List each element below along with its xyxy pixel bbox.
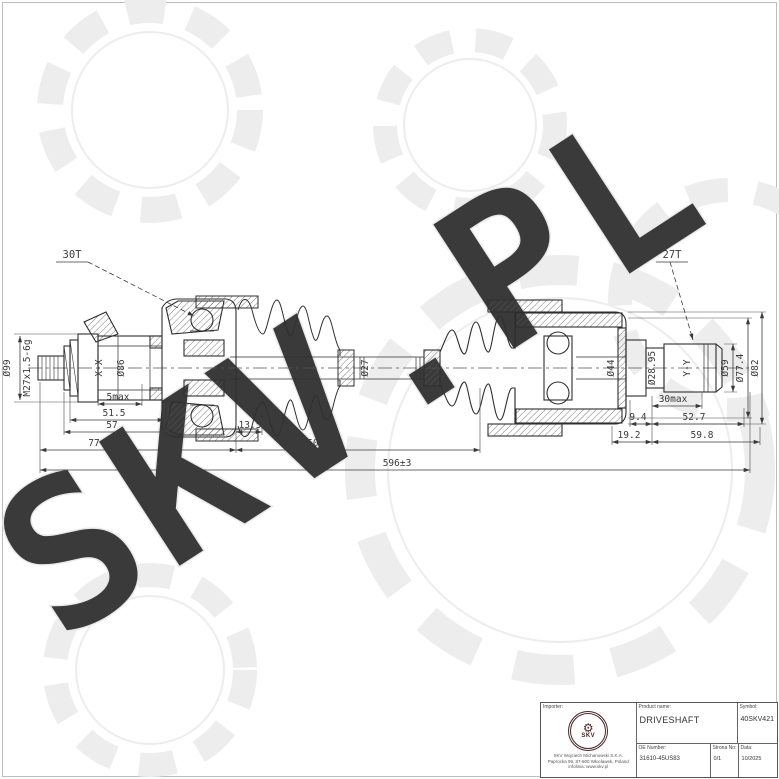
dim-52-7-label: 52.7 <box>683 412 706 423</box>
symbol-value: 40SKV421 <box>741 716 774 723</box>
dia-44-label: Ø44 <box>606 359 617 376</box>
importer-address: SKV Wojciech Michanowski S.K.A. Paprocka… <box>548 753 629 770</box>
date-label: Data: <box>741 745 753 751</box>
section-yy-label: Y-Y <box>682 359 693 376</box>
dim-57-label: 57 <box>106 420 117 431</box>
title-block-importer-cell: Importer: ⚙ SKV SKV Wojciech Michanowski… <box>541 703 637 777</box>
thread-label: M27x1.5-6g <box>22 339 33 396</box>
title-block-row2: OE Number: 31610-45US83 Strona No: 0/1 D… <box>637 744 777 777</box>
dim-30max-label: 30max <box>659 394 688 405</box>
dim-51-5-label: 51.5 <box>103 408 126 419</box>
section-xx-label: X-X <box>94 359 105 376</box>
dim-19-2-label: 19.2 <box>618 430 641 441</box>
product-name-value: DRIVESHAFT <box>640 715 734 725</box>
dim-5max-label: 5max <box>107 392 130 403</box>
page-cell: Strona No: 0/1 <box>711 744 739 777</box>
importer-label: Importer: <box>543 704 563 710</box>
dia-77-4-label: Ø77.4 <box>735 353 746 382</box>
dia-28-95-label: Ø28.95 <box>647 351 658 385</box>
oe-number-value: 31610-45US83 <box>640 756 707 762</box>
gear-icon: ⚙ <box>583 723 594 733</box>
callout-right-label: 27T <box>663 249 683 261</box>
dim-59-8-label: 59.8 <box>691 430 714 441</box>
oe-number-label: OE Number: <box>639 745 667 751</box>
technical-drawing: SKV.PL <box>0 0 779 779</box>
title-block-right: Product name: DRIVESHAFT Symbol: 40SKV42… <box>637 703 777 777</box>
product-name-label: Product name: <box>639 704 672 710</box>
dia-86-label: Ø86 <box>116 359 127 376</box>
symbol-cell: Symbol: 40SKV421 <box>738 703 777 743</box>
callout-left-label: 30T <box>63 249 83 261</box>
date-value: 10/2025 <box>742 756 774 762</box>
importer-address-line1: SKV Wojciech Michanowski S.K.A. <box>548 753 629 759</box>
page-label: Strona No: <box>713 745 737 751</box>
date-cell: Data: 10/2025 <box>739 744 777 777</box>
dia-27-label: Ø27 <box>360 359 371 376</box>
product-name-cell: Product name: DRIVESHAFT <box>637 703 738 743</box>
dim-9-4-label: 9.4 <box>629 412 646 423</box>
dia-59-label: Ø59 <box>720 359 731 376</box>
dim-total-label: 596±3 <box>383 458 412 469</box>
skv-logo: ⚙ SKV <box>568 711 608 751</box>
oe-number-cell: OE Number: 31610-45US83 <box>637 744 711 777</box>
dia-82-label: Ø82 <box>750 359 761 376</box>
title-block-row1: Product name: DRIVESHAFT Symbol: 40SKV42… <box>637 703 777 744</box>
symbol-label: Symbol: <box>740 704 758 710</box>
dim-150-label: 150 <box>301 438 318 449</box>
logo-brand-text: SKV <box>581 733 595 739</box>
title-block: Importer: ⚙ SKV SKV Wojciech Michanowski… <box>540 702 778 778</box>
importer-address-line3: infolinia: www.skv.pl <box>548 764 629 770</box>
dia-99-label: Ø99 <box>2 359 13 376</box>
dim-77-label: 77 <box>88 438 99 449</box>
drawing-sheet: SKV.PL <box>0 0 779 779</box>
dim-13-5-label: 13.5 <box>239 420 262 431</box>
page-value: 0/1 <box>714 756 735 762</box>
